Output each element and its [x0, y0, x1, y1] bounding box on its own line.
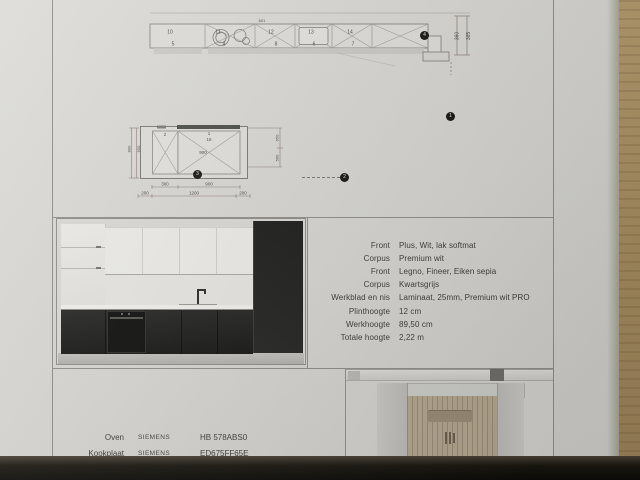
- built-in-oven: [107, 311, 146, 353]
- tall-dark-cabinet-column: [253, 221, 303, 353]
- spec-label: Front: [318, 241, 390, 250]
- spec-label: Corpus: [318, 280, 390, 289]
- svg-text:1200: 1200: [189, 191, 200, 196]
- base-cabinets: [61, 310, 253, 354]
- spec-table: Front Plus, Wit, lak softmat Corpus Prem…: [318, 239, 550, 344]
- wooden-desk: [619, 0, 640, 480]
- position-marker: 3: [193, 170, 202, 179]
- svg-text:900: 900: [199, 150, 207, 155]
- appliance-model: HB 578ABS0: [200, 433, 327, 442]
- floor: [58, 353, 304, 364]
- spec-value: Laminaat, 25mm, Premium wit PRO: [399, 293, 530, 302]
- svg-text:14: 14: [347, 30, 353, 36]
- spec-value: Plus, Wit, lak softmat: [399, 241, 476, 250]
- door-gap: [105, 310, 106, 354]
- kitchen-elevation-render: [56, 218, 306, 365]
- door-gap: [142, 228, 143, 274]
- svg-text:200: 200: [239, 191, 247, 196]
- handle: [96, 267, 101, 269]
- oven-control: [121, 313, 123, 315]
- wall-cabinets: [105, 227, 253, 276]
- panel-mark: [453, 433, 455, 443]
- svg-text:16: 16: [206, 137, 212, 142]
- faucet-tip: [204, 289, 206, 294]
- svg-text:800: 800: [127, 145, 132, 152]
- corner-unit-foot: [423, 52, 449, 61]
- dark-bracket: [490, 369, 504, 381]
- document-paper: 360 365 10 11 12 13 14 5 4 8 6 7 601: [0, 0, 620, 480]
- panel-mark: [445, 432, 447, 444]
- spec-label: Werkhoogte: [318, 320, 390, 329]
- svg-text:12: 12: [268, 30, 274, 36]
- backsplash: [105, 275, 253, 305]
- oven-handle: [110, 317, 143, 319]
- spec-label: Werkblad en nis: [318, 293, 390, 302]
- spec-row: Front Plus, Wit, lak softmat: [318, 239, 550, 252]
- svg-text:650: 650: [136, 145, 141, 152]
- position-marker: 1: [446, 112, 455, 121]
- svg-text:10: 10: [167, 30, 173, 36]
- countertop-band: [346, 370, 553, 381]
- page-frame-right: [553, 0, 554, 456]
- svg-text:7: 7: [352, 42, 355, 48]
- desk-edge-shadow: [0, 456, 640, 480]
- svg-text:5: 5: [172, 42, 175, 48]
- door-gap: [181, 310, 182, 354]
- spec-row: Werkblad en nis Laminaat, 25mm, Premium …: [318, 291, 550, 304]
- plan-dim-right-1: 360: [455, 32, 461, 41]
- appliance-row: Oven SIEMENS HB 578ABS0: [62, 429, 327, 445]
- spec-row: Werkhoogte 89,50 cm: [318, 318, 550, 331]
- svg-text:6: 6: [313, 42, 316, 48]
- svg-text:11: 11: [215, 30, 220, 36]
- appliance-brand: SIEMENS: [138, 434, 200, 441]
- position-marker: 2: [340, 173, 349, 182]
- svg-text:4: 4: [223, 42, 226, 48]
- plan-view-cabinet-run: 360 365 10 11 12 13 14 5 4 8 6 7 601: [140, 0, 480, 75]
- svg-text:300: 300: [161, 182, 169, 187]
- spec-value: 12 cm: [399, 307, 421, 316]
- page-frame-left: [52, 0, 53, 456]
- spec-value: Kwartsgrijs: [399, 280, 439, 289]
- faucet: [197, 289, 199, 305]
- oven-control: [128, 313, 130, 315]
- door-gap: [216, 228, 217, 274]
- door-gap: [179, 228, 180, 274]
- island-right-post: [497, 383, 524, 456]
- appliance-label: Oven: [62, 433, 138, 442]
- plan-dim-right-2: 365: [466, 32, 472, 41]
- panel-handle-recess: [428, 410, 472, 422]
- spec-row: Corpus Kwartsgrijs: [318, 278, 550, 291]
- spec-label: Front: [318, 267, 390, 276]
- spec-value: Legno, Fineer, Eiken sepia: [399, 267, 496, 276]
- spec-label: Plinthoogte: [318, 307, 390, 316]
- spec-row: Corpus Premium wit: [318, 252, 550, 265]
- panel-mark: [449, 432, 451, 444]
- spec-row: Front Legno, Fineer, Eiken sepia: [318, 265, 550, 278]
- photo-of-kitchen-plan-document: 360 365 10 11 12 13 14 5 4 8 6 7 601: [0, 0, 640, 480]
- plan-note: 601: [259, 18, 266, 23]
- position-marker: 4: [420, 31, 429, 40]
- spec-label: Corpus: [318, 254, 390, 263]
- svg-text:560: 560: [275, 154, 280, 161]
- spec-row: Plinthoogte 12 cm: [318, 304, 550, 317]
- spec-row: Totale hoogte 2,22 m: [318, 331, 550, 344]
- svg-text:900: 900: [205, 182, 213, 187]
- svg-text:650: 650: [275, 134, 280, 141]
- middle-column-divider: [307, 217, 308, 368]
- handle: [96, 246, 101, 248]
- spec-value: Premium wit: [399, 254, 444, 263]
- svg-text:200: 200: [141, 191, 149, 196]
- island-plan-view: 2 1 16 900 300 900 200 1200: [120, 108, 300, 203]
- spec-value: 2,22 m: [399, 333, 424, 342]
- marker-leader-line: [302, 177, 340, 178]
- wood-panel: [407, 396, 497, 456]
- spec-value: 89,50 cm: [399, 320, 433, 329]
- island-left-post: [377, 383, 408, 456]
- svg-text:8: 8: [275, 42, 278, 48]
- island-detail-render: [346, 369, 553, 456]
- tall-cabinet: [61, 224, 106, 308]
- spec-label: Totale hoogte: [318, 333, 390, 342]
- pencil-line: [337, 53, 395, 66]
- svg-text:13: 13: [308, 30, 314, 36]
- counter-bracket: [348, 371, 360, 380]
- door-gap: [217, 310, 218, 354]
